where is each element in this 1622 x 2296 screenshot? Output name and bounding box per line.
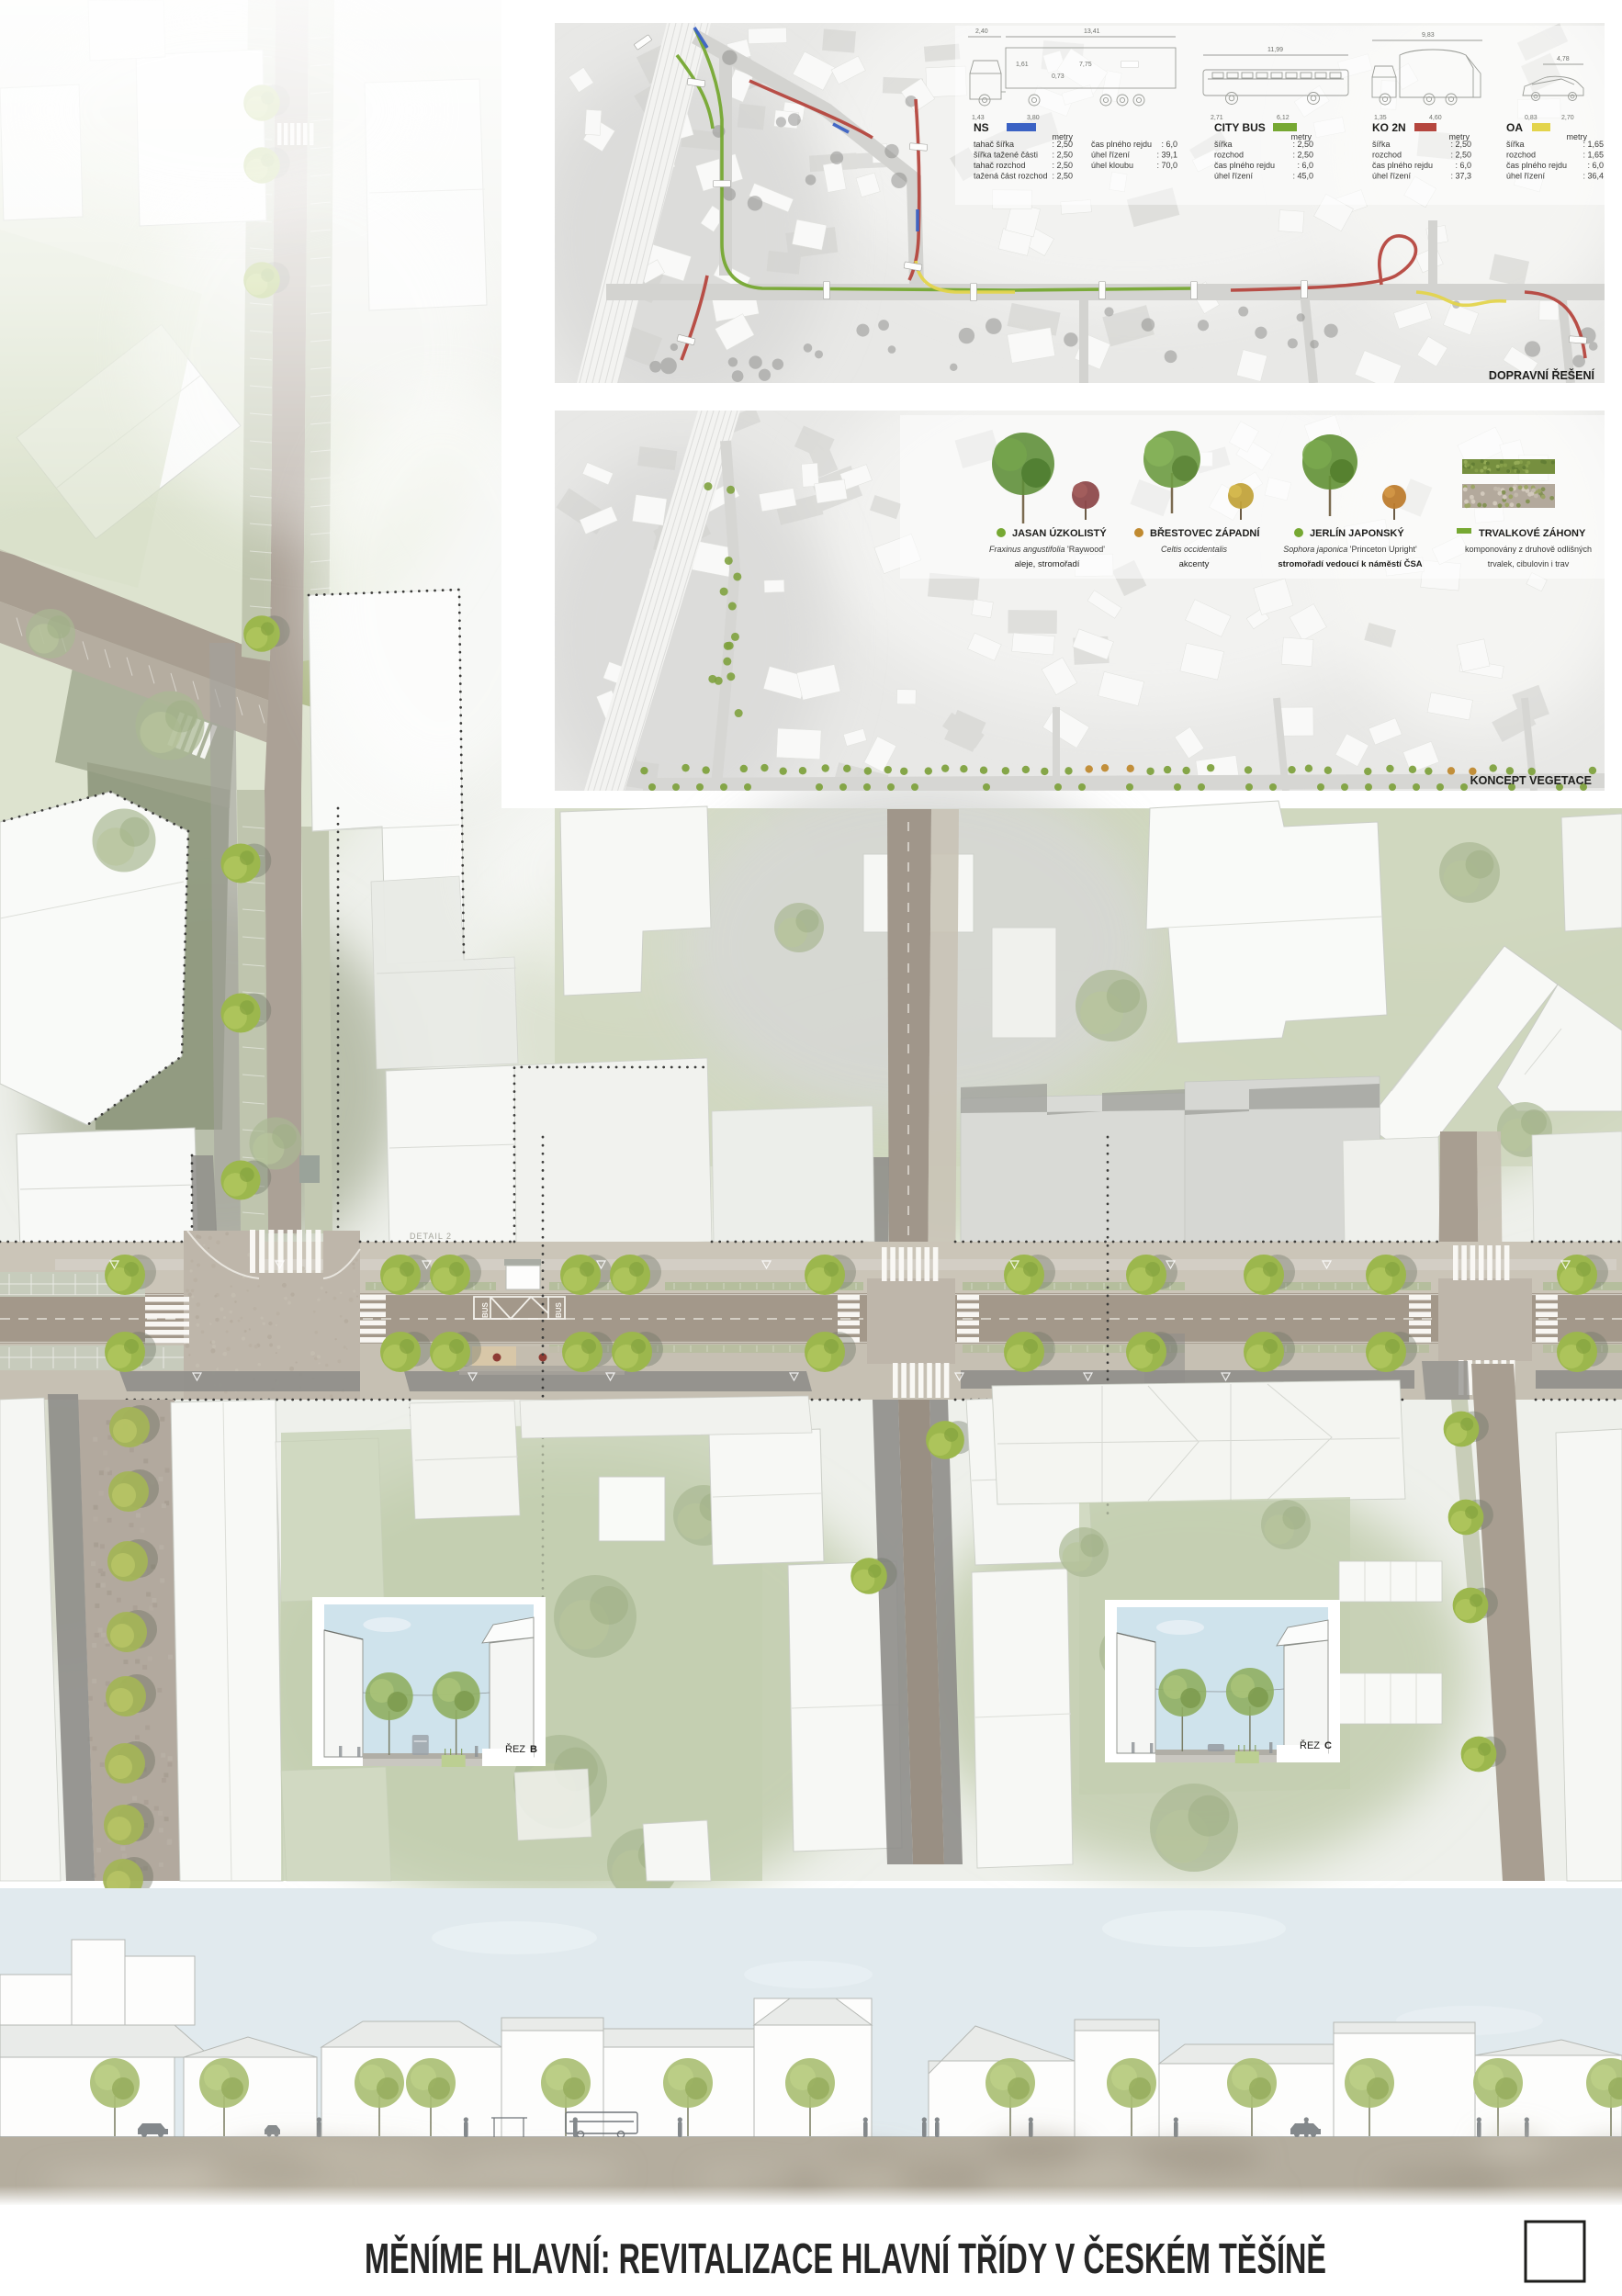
svg-text:komponovány z druhově odlišnýc: komponovány z druhově odlišných xyxy=(1465,545,1592,554)
svg-text:šířka tažené části: šířka tažené části xyxy=(974,151,1038,160)
svg-text:úhel kloubu: úhel kloubu xyxy=(1091,161,1133,170)
svg-text:13,41: 13,41 xyxy=(1084,28,1100,35)
svg-text:OA: OA xyxy=(1506,121,1523,134)
svg-text:rozchod: rozchod xyxy=(1372,151,1402,160)
svg-text:7,75: 7,75 xyxy=(1079,62,1092,68)
svg-text:: 2,50: : 2,50 xyxy=(1052,172,1073,181)
svg-text:: 2,50: : 2,50 xyxy=(1450,151,1471,160)
svg-text:4,78: 4,78 xyxy=(1557,56,1570,62)
svg-text:tahač rozchod: tahač rozchod xyxy=(974,161,1026,170)
svg-text:BŘESTOVEC ZÁPADNÍ: BŘESTOVEC ZÁPADNÍ xyxy=(1150,527,1260,539)
svg-text:: 37,3: : 37,3 xyxy=(1450,172,1471,181)
svg-text:úhel řízení: úhel řízení xyxy=(1091,151,1131,160)
svg-text:: 6,0: : 6,0 xyxy=(1455,161,1471,170)
svg-text:MĚNÍME HLAVNÍ: REVITALIZACE HL: MĚNÍME HLAVNÍ: REVITALIZACE HLAVNÍ TŘÍDY… xyxy=(365,2234,1326,2282)
svg-text:JASAN ÚZKOLISTÝ: JASAN ÚZKOLISTÝ xyxy=(1012,527,1107,539)
svg-text:Fraxinus angustifolia 'Raywood: Fraxinus angustifolia 'Raywood' xyxy=(989,545,1105,554)
svg-text:: 36,4: : 36,4 xyxy=(1583,172,1604,181)
svg-text:ŘEZ: ŘEZ xyxy=(505,1743,525,1755)
svg-text:: 2,50: : 2,50 xyxy=(1052,140,1073,149)
svg-text:0,83: 0,83 xyxy=(1525,115,1538,121)
svg-text:DETAIL 2: DETAIL 2 xyxy=(410,1232,452,1241)
svg-text:čas plného rejdu: čas plného rejdu xyxy=(1091,140,1152,149)
svg-text:čas plného rejdu: čas plného rejdu xyxy=(1506,161,1567,170)
svg-text:trvalek, cibulovin i trav: trvalek, cibulovin i trav xyxy=(1488,559,1570,568)
svg-text:čas plného rejdu: čas plného rejdu xyxy=(1214,161,1275,170)
svg-text:aleje, stromořadí: aleje, stromořadí xyxy=(1015,559,1080,569)
svg-text:stromořadí vedoucí k náměstí Č: stromořadí vedoucí k náměstí ČSA xyxy=(1278,558,1422,569)
svg-text:: 45,0: : 45,0 xyxy=(1292,172,1313,181)
svg-text:rozchod: rozchod xyxy=(1214,151,1244,160)
svg-text:9,83: 9,83 xyxy=(1422,32,1435,39)
svg-text:4,60: 4,60 xyxy=(1429,115,1442,121)
svg-text:úhel řízení: úhel řízení xyxy=(1506,172,1546,181)
svg-text:NS: NS xyxy=(974,121,989,134)
svg-text:BUS: BUS xyxy=(481,1301,490,1318)
svg-text:DOPRAVNÍ ŘEŠENÍ: DOPRAVNÍ ŘEŠENÍ xyxy=(1489,368,1595,382)
svg-text:2,40: 2,40 xyxy=(975,28,988,35)
svg-text:Sophora japonica 'Princeton Up: Sophora japonica 'Princeton Upright' xyxy=(1283,545,1417,554)
svg-text:: 2,50: : 2,50 xyxy=(1292,151,1313,160)
svg-text:BUS: BUS xyxy=(555,1301,563,1318)
svg-text:Celtis occidentalis: Celtis occidentalis xyxy=(1161,545,1228,554)
svg-text:B: B xyxy=(530,1744,537,1755)
svg-text:: 6,0: : 6,0 xyxy=(1587,161,1604,170)
svg-text:tažená část rozchod: tažená část rozchod xyxy=(974,172,1048,181)
svg-text:1,43: 1,43 xyxy=(972,115,985,121)
svg-text:2,70: 2,70 xyxy=(1561,115,1574,121)
svg-text:akcenty: akcenty xyxy=(1179,559,1210,569)
svg-text:ŘEZ: ŘEZ xyxy=(1300,1739,1320,1751)
svg-text:šířka: šířka xyxy=(1506,140,1525,149)
svg-text:úhel řízení: úhel řízení xyxy=(1372,172,1412,181)
svg-text:tahač šířka: tahač šířka xyxy=(974,140,1014,149)
svg-text:1,35: 1,35 xyxy=(1374,115,1387,121)
svg-text:: 2,50: : 2,50 xyxy=(1292,140,1313,149)
svg-text:JERLÍN JAPONSKÝ: JERLÍN JAPONSKÝ xyxy=(1310,527,1404,539)
svg-text:1,61: 1,61 xyxy=(1016,62,1029,68)
svg-text:KO 2N: KO 2N xyxy=(1372,121,1406,134)
svg-text:: 6,0: : 6,0 xyxy=(1297,161,1313,170)
svg-text:0,73: 0,73 xyxy=(1052,73,1064,80)
svg-text:rozchod: rozchod xyxy=(1506,151,1536,160)
svg-text:: 2,50: : 2,50 xyxy=(1450,140,1471,149)
svg-text:3,80: 3,80 xyxy=(1027,115,1040,121)
svg-text:čas plného rejdu: čas plného rejdu xyxy=(1372,161,1433,170)
svg-text:: 6,0: : 6,0 xyxy=(1161,140,1177,149)
svg-text:: 39,1: : 39,1 xyxy=(1156,151,1177,160)
svg-text:šířka: šířka xyxy=(1372,140,1391,149)
svg-text:: 2,50: : 2,50 xyxy=(1052,151,1073,160)
svg-text:: 1,65: : 1,65 xyxy=(1583,151,1604,160)
svg-text:11,99: 11,99 xyxy=(1267,47,1283,53)
svg-text:šířka: šířka xyxy=(1214,140,1233,149)
svg-text:: 1,65: : 1,65 xyxy=(1583,140,1604,149)
svg-text:C: C xyxy=(1324,1740,1332,1751)
svg-text:6,12: 6,12 xyxy=(1277,115,1290,121)
svg-text:: 2,50: : 2,50 xyxy=(1052,161,1073,170)
svg-text:: 70,0: : 70,0 xyxy=(1156,161,1177,170)
svg-text:CITY BUS: CITY BUS xyxy=(1214,121,1266,134)
svg-text:TRVALKOVÉ ZÁHONY: TRVALKOVÉ ZÁHONY xyxy=(1479,527,1586,539)
svg-text:KONCEPT VEGETACE: KONCEPT VEGETACE xyxy=(1470,774,1592,787)
svg-text:2,71: 2,71 xyxy=(1211,115,1223,121)
svg-text:úhel řízení: úhel řízení xyxy=(1214,172,1254,181)
